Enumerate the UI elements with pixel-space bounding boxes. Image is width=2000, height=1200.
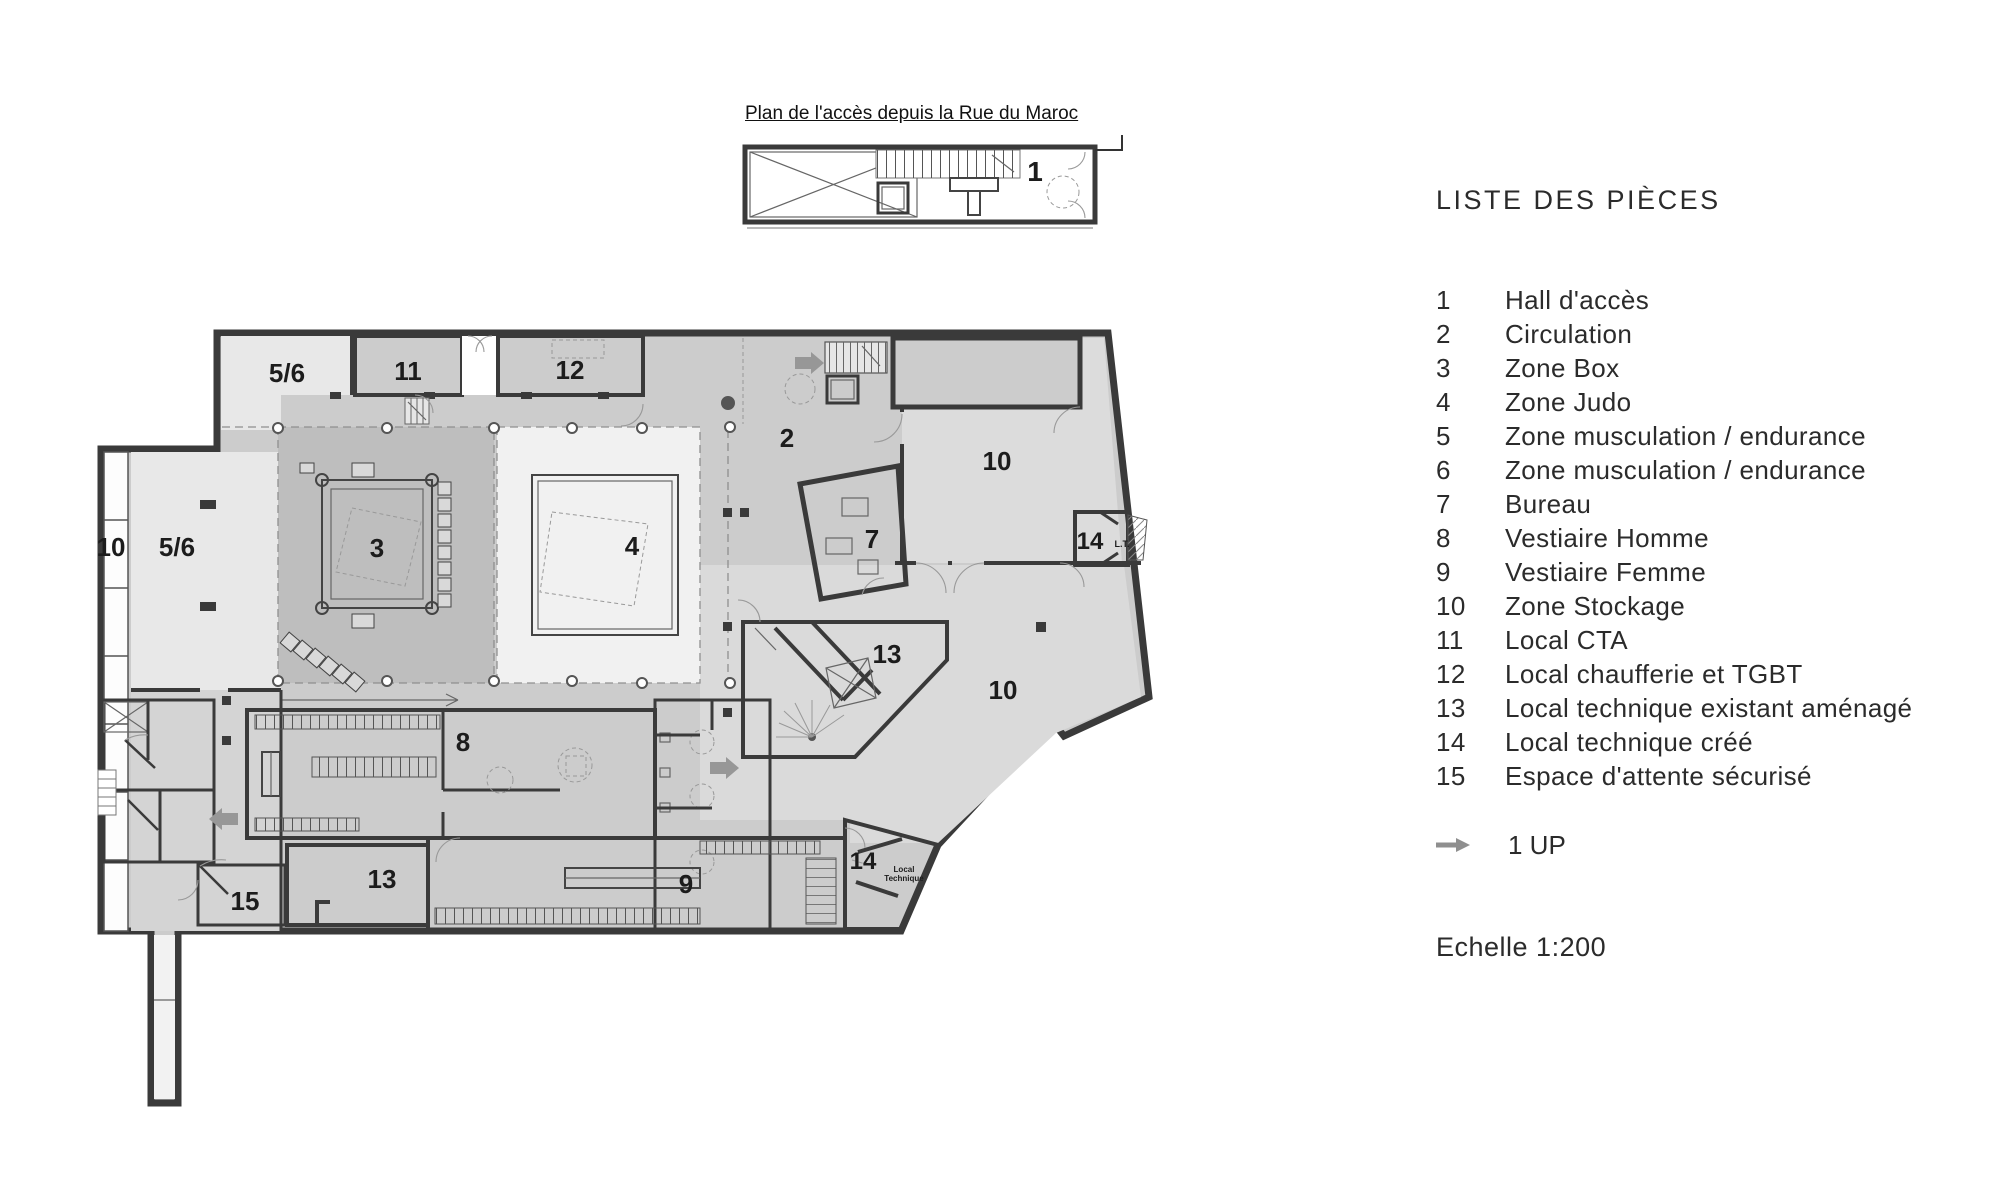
legend-item-label: Espace d'attente sécurisé [1505,759,1976,793]
room-label-9-17: 9 [679,869,693,899]
legend-item-number: 9 [1436,555,1505,589]
room-label-12-2: 12 [556,355,585,385]
room-label-56-0: 5/6 [269,358,305,388]
legend-item-number: 1 [1436,283,1505,317]
room-label-4-8: 4 [625,531,640,561]
turn-circle [1047,176,1079,208]
legend-item-label: Zone musculation / endurance [1505,453,1976,487]
legend-item-5: 5Zone musculation / endurance [1436,419,1976,453]
locker-col [806,858,836,924]
room-label-7-9: 7 [865,524,879,554]
legend-item-label: Local technique créé [1505,725,1976,759]
legend-item-6: 6Zone musculation / endurance [1436,453,1976,487]
room-10-left [104,452,128,931]
vestibule-11-12 [462,336,498,395]
legend-item-number: 15 [1436,759,1505,793]
legend-item-3: 3Zone Box [1436,351,1976,385]
legend-item-label: Zone Judo [1505,385,1976,419]
room-label-1-21: 1 [1027,156,1043,187]
legend-item-11: 11Local CTA [1436,623,1976,657]
room-label-2-3: 2 [780,423,794,453]
legend-item-number: 11 [1436,623,1505,657]
legend-title: LISTE DES PIÈCES [1436,185,1721,216]
stair-small [405,398,429,424]
legend-item-label: Zone Stockage [1505,589,1976,623]
legend-item-4: 4Zone Judo [1436,385,1976,419]
room-label-11-1: 11 [394,356,422,386]
legend-item-number: 4 [1436,385,1505,419]
legend-item-label: Hall d'accès [1505,283,1976,317]
room-label-56-6: 5/6 [159,532,195,562]
legend-item-number: 10 [1436,589,1505,623]
legend-item-2: 2Circulation [1436,317,1976,351]
legend-item-15: 15Espace d'attente sécurisé [1436,759,1976,793]
room-label-14-18: 14 [850,848,877,875]
legend-item-label: Vestiaire Homme [1505,521,1976,555]
legend-item-label: Circulation [1505,317,1976,351]
legend-item-10: 10Zone Stockage [1436,589,1976,623]
room-label-10-4: 10 [983,446,1012,476]
room-label-13-12: 13 [873,639,902,669]
room-56-left [131,452,281,690]
leader-line [1095,135,1122,150]
legend-item-7: 7Bureau [1436,487,1976,521]
legend-item-label: Bureau [1505,487,1976,521]
access-stair [876,150,1020,178]
room-label-LT-11: L.T. [1115,539,1130,549]
legend-item-label: Zone Box [1505,351,1976,385]
room-label-13-16: 13 [368,864,397,894]
legend-item-8: 8Vestiaire Homme [1436,521,1976,555]
room-label-Local-19: Local [894,865,915,874]
legend-item-14: 14Local technique créé [1436,725,1976,759]
scale-note: Echelle 1:200 [1436,932,1606,963]
legend-item-12: 12Local chaufferie et TGBT [1436,657,1976,691]
legend-item-label: Vestiaire Femme [1505,555,1976,589]
legend-item-number: 2 [1436,317,1505,351]
up-note: 1 UP [1508,828,1566,862]
legend-item-number: 5 [1436,419,1505,453]
room-label-15-15: 15 [231,886,260,916]
legend-item-label: Zone musculation / endurance [1505,419,1976,453]
legend-up-row: 1 UP [1436,828,1566,862]
legend-item-number: 12 [1436,657,1505,691]
sheet: Plan de l'accès depuis la Rue du Maroc [0,0,2000,1200]
legend-item-number: 13 [1436,691,1505,725]
lower-corridor [154,935,175,1099]
legend-item-number: 7 [1436,487,1505,521]
legend-item-number: 14 [1436,725,1505,759]
legend-item-1: 1Hall d'accès [1436,283,1976,317]
legend-item-label: Local chaufferie et TGBT [1505,657,1976,691]
legend-item-9: 9Vestiaire Femme [1436,555,1976,589]
room-label-3-7: 3 [370,533,384,563]
reception-desk [950,178,998,215]
room-label-10-5: 10 [97,532,126,562]
room-label-10-13: 10 [989,675,1018,705]
legend-item-label: Local technique existant aménagé [1505,691,1976,725]
zone-4 [497,427,700,683]
legend-item-number: 6 [1436,453,1505,487]
room-10-lower [700,565,1141,843]
room-label-8-14: 8 [456,727,470,757]
legend-item-label: Local CTA [1505,623,1976,657]
legend-list: 1Hall d'accès2Circulation3Zone Box4Zone … [1436,283,1976,793]
legend-item-number: 8 [1436,521,1505,555]
legend-item-13: 13Local technique existant aménagé [1436,691,1976,725]
room-label-Technique-20: Technique [884,874,924,883]
room-label-14-10: 14 [1077,528,1104,555]
legend-item-number: 3 [1436,351,1505,385]
stair-left [98,770,116,815]
access-plan [745,135,1122,228]
up-arrow-icon [1436,838,1470,852]
